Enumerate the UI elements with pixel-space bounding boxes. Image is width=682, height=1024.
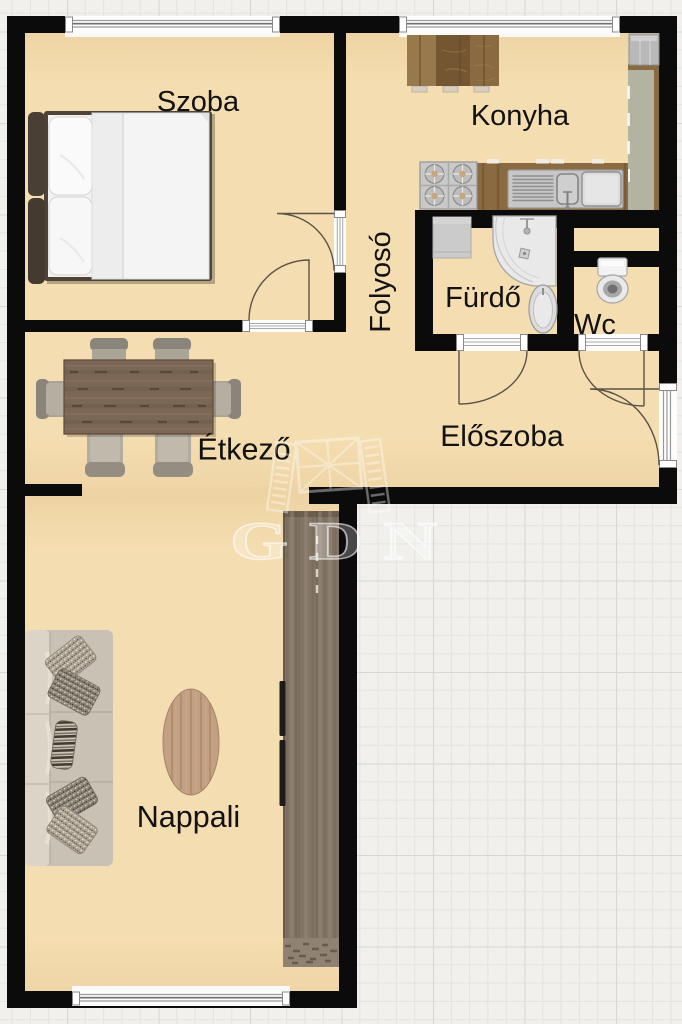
- svg-text:Nappali: Nappali: [137, 800, 240, 834]
- svg-text:Konyha: Konyha: [471, 100, 570, 132]
- svg-text:Előszoba: Előszoba: [440, 420, 564, 453]
- svg-text:Szoba: Szoba: [157, 86, 240, 118]
- svg-text:Fürdő: Fürdő: [445, 282, 521, 314]
- svg-text:Wc: Wc: [574, 309, 616, 341]
- svg-text:Folyosó: Folyosó: [365, 231, 397, 333]
- svg-text:GDN: GDN: [230, 512, 458, 572]
